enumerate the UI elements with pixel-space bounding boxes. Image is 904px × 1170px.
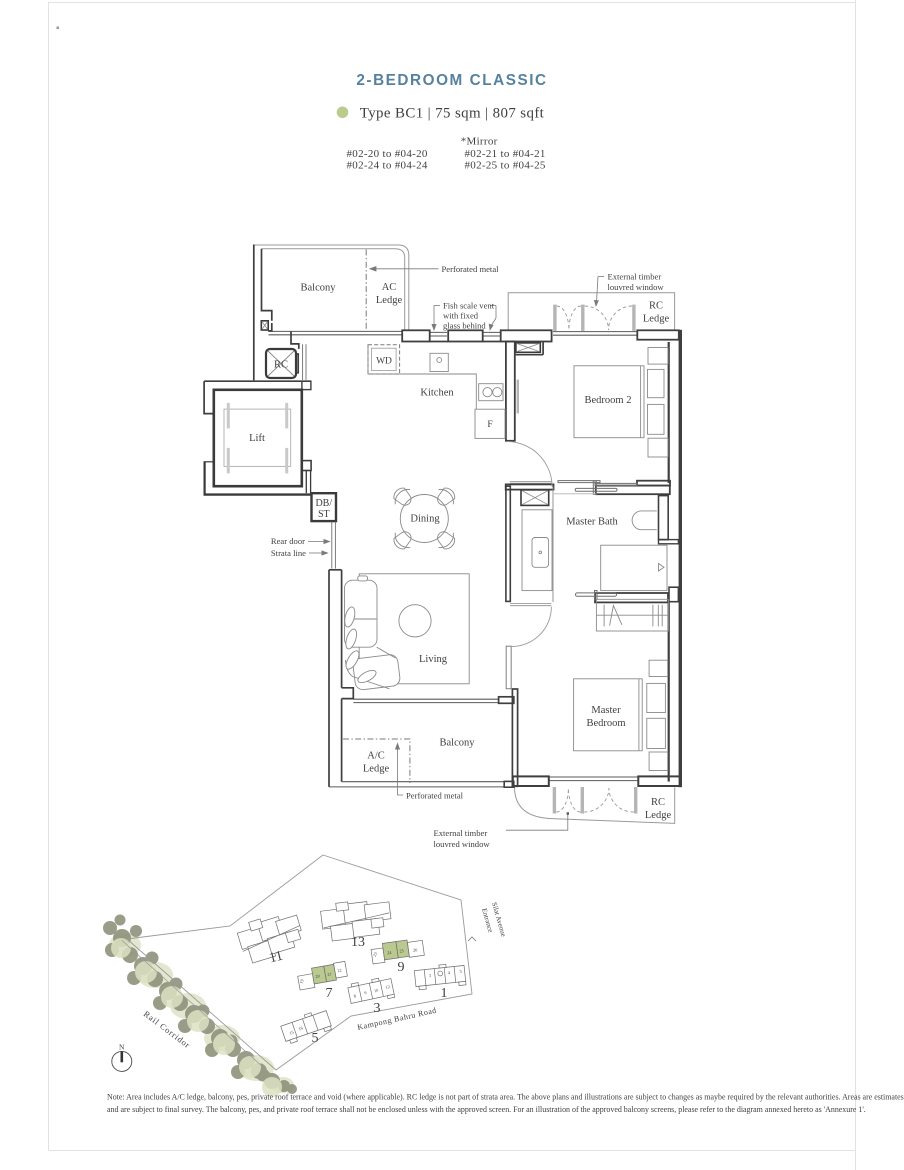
svg-text:Kampong Bahru Road: Kampong Bahru Road [356,1006,437,1032]
svg-text:and are subject to final surve: and are subject to final survey. The bal… [107,1105,866,1114]
svg-text:Lift: Lift [249,433,265,444]
svg-text:Fish scale vent: Fish scale vent [443,301,495,311]
svg-text:13: 13 [351,935,365,950]
svg-text:N: N [119,1043,125,1052]
svg-text:AC: AC [382,282,397,293]
svg-text:7: 7 [326,986,333,1001]
svg-text:Kitchen: Kitchen [420,388,454,399]
svg-text:Perforated metal: Perforated metal [442,264,500,274]
svg-text:louvred window: louvred window [608,282,665,292]
svg-text:glass behind: glass behind [443,321,486,331]
svg-text:5: 5 [312,1031,319,1046]
svg-text:DB/: DB/ [315,498,332,509]
svg-text:2-BEDROOM CLASSIC: 2-BEDROOM CLASSIC [356,72,547,89]
svg-text:External timber: External timber [608,272,662,282]
svg-text:20: 20 [315,973,320,979]
svg-text:Master Bath: Master Bath [566,517,618,528]
svg-text:1: 1 [441,986,448,1001]
svg-text:with fixed: with fixed [443,311,479,321]
svg-text:Master: Master [591,705,621,716]
svg-text:Living: Living [419,654,448,665]
svg-text:louvred window: louvred window [434,839,491,849]
svg-text:#02-24 to #04-24: #02-24 to #04-24 [347,160,428,172]
svg-text:RC: RC [649,301,663,312]
svg-text:RC: RC [274,360,288,371]
svg-text:*Mirror: *Mirror [461,135,498,147]
svg-text:21: 21 [327,971,332,977]
svg-text:Ledge: Ledge [363,764,390,775]
svg-text:Note: Area includes A/C ledge,: Note: Area includes A/C ledge, balcony, … [107,1093,904,1102]
svg-text:Silat Avenue: Silat Avenue [490,901,507,937]
svg-text:A/C: A/C [367,751,385,762]
svg-text:Dining: Dining [410,514,440,525]
svg-text:Bedroom: Bedroom [586,718,625,729]
svg-text:9: 9 [398,960,405,975]
svg-text:Balcony: Balcony [301,283,337,294]
svg-text:F: F [487,420,492,430]
svg-text:Perforated metal: Perforated metal [406,791,464,801]
svg-text:Strata line: Strata line [271,548,306,558]
svg-text:Ledge: Ledge [645,810,672,821]
svg-text:Ledge: Ledge [376,295,403,306]
svg-text:#02-25 to #04-25: #02-25 to #04-25 [465,160,546,172]
svg-text:25: 25 [399,948,404,954]
svg-text:Type BC1 | 75 sqm | 807 sq: Type BC1 | 75 sqm | 807 sqft [360,106,545,122]
svg-text:Balcony: Balcony [440,738,476,749]
svg-text:Ledge: Ledge [643,314,670,325]
svg-text:Rear door: Rear door [271,536,305,546]
svg-text:External timber: External timber [434,828,488,838]
svg-text:22: 22 [337,968,342,974]
svg-text:ST: ST [318,509,330,520]
svg-text:RC: RC [651,797,665,808]
svg-text:Bedroom 2: Bedroom 2 [585,395,632,406]
svg-text:WD: WD [376,357,392,367]
svg-text:#02-20 to #04-20: #02-20 to #04-20 [347,148,428,160]
svg-text:3: 3 [374,1001,381,1016]
svg-text:#02-21 to #04-21: #02-21 to #04-21 [465,148,546,160]
